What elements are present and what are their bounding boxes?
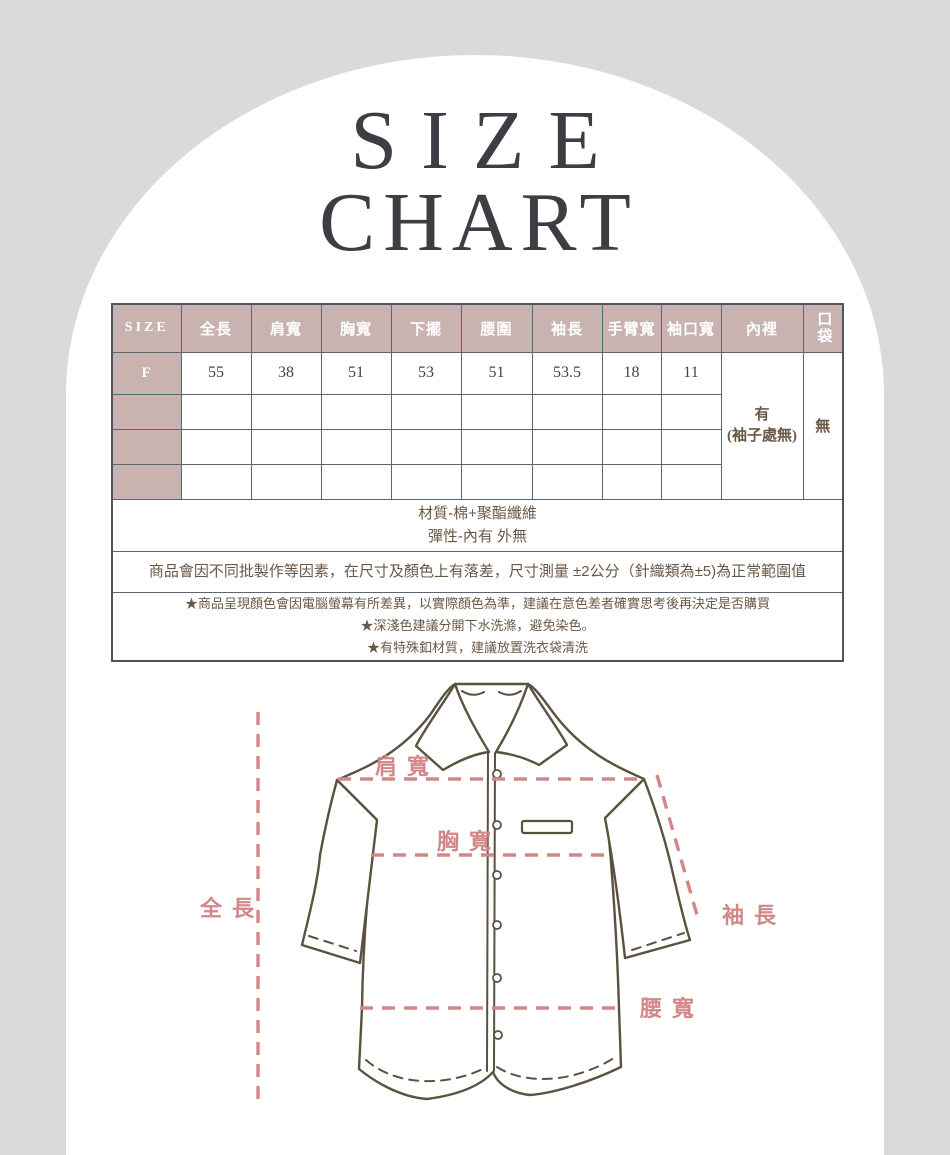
label-shoulder-width: 肩寬	[375, 754, 439, 779]
warning-wash-separately: ★深淺色建議分開下水洗滌，避免染色。	[113, 615, 842, 637]
title-line-1: SIZE	[0, 100, 950, 182]
label-waist-width: 腰寬	[639, 996, 704, 1021]
header-chest-width: 胸寬	[321, 304, 391, 352]
material-note-row: 材質-棉+聚酯纖維 彈性-內有 外無	[112, 499, 843, 551]
header-sleeve-length: 袖長	[532, 304, 602, 352]
elasticity-note: 彈性-內有 外無	[113, 525, 842, 548]
shirt-body-outline	[337, 684, 644, 1099]
size-f-label: F	[112, 352, 181, 394]
value-shoulder-width: 38	[251, 352, 321, 394]
header-total-length: 全長	[181, 304, 251, 352]
value-total-length: 55	[181, 352, 251, 394]
label-chest-width: 胸寬	[437, 829, 501, 854]
value-waist: 51	[461, 352, 532, 394]
value-cuff-width: 11	[661, 352, 721, 394]
shirt-right-sleeve	[605, 779, 690, 958]
header-arm-width: 手臂寬	[602, 304, 661, 352]
warning-color-difference: ★商品呈現顏色會因電腦螢幕有所差異，以實際顏色為準，建議在意色差者確實思考後再決…	[113, 593, 842, 615]
value-sleeve-length: 53.5	[532, 352, 602, 394]
header-pocket: 口袋	[803, 304, 843, 352]
lining-cell: 有 (袖子處無)	[721, 352, 803, 499]
header-lining: 內裡	[721, 304, 803, 352]
material-note: 材質-棉+聚酯纖維	[113, 502, 842, 525]
pocket-cell: 無	[803, 352, 843, 499]
size-chart-table: SIZE 全長 肩寬 胸寬 下擺 腰圍 袖長 手臂寬 袖口寬 內裡 口袋 F 5…	[111, 303, 844, 662]
table-row-f: F 55 38 51 53 51 53.5 18 11 有 (袖子處無) 無	[112, 352, 843, 394]
value-chest-width: 51	[321, 352, 391, 394]
label-total-length: 全長	[199, 896, 264, 921]
table-header-row: SIZE 全長 肩寬 胸寬 下擺 腰圍 袖長 手臂寬 袖口寬 內裡 口袋	[112, 304, 843, 352]
header-waist: 腰圍	[461, 304, 532, 352]
header-shoulder-width: 肩寬	[251, 304, 321, 352]
title-line-2: CHART	[0, 182, 950, 264]
warning-note-row: ★商品呈現顏色會因電腦螢幕有所差異，以實際顏色為準，建議在意色差者確實思考後再決…	[112, 592, 843, 661]
tolerance-note-row: 商品會因不同批製作等因素，在尺寸及顏色上有落差，尺寸測量 ±2公分（針織類為±5…	[112, 551, 843, 592]
tolerance-note: 商品會因不同批製作等因素，在尺寸及顏色上有落差，尺寸測量 ±2公分（針織類為±5…	[112, 551, 843, 592]
page-title: SIZE CHART	[0, 100, 950, 264]
warning-laundry-bag: ★有特殊釦材質，建議放置洗衣袋清洗	[113, 637, 842, 659]
label-sleeve-length: 袖長	[722, 903, 786, 928]
value-arm-width: 18	[602, 352, 661, 394]
value-hem: 53	[391, 352, 461, 394]
header-hem: 下擺	[391, 304, 461, 352]
header-size: SIZE	[112, 304, 181, 352]
header-cuff-width: 袖口寬	[661, 304, 721, 352]
measurement-diagram: 肩寬 胸寬 全長 袖長 腰寬	[0, 680, 950, 1138]
